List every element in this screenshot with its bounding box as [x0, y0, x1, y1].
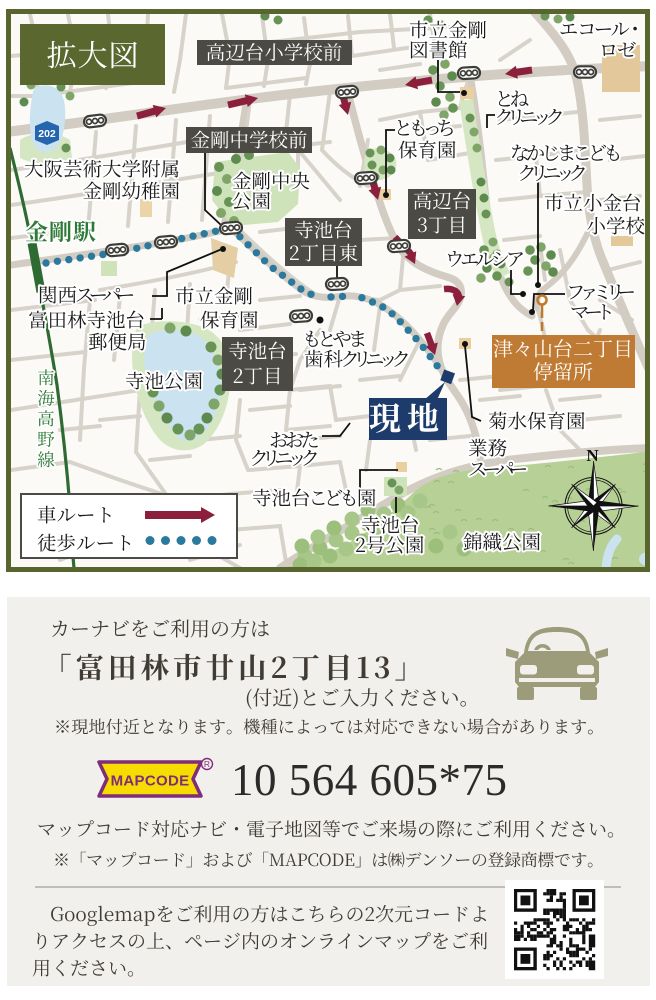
svg-text:10 564 605*75: 10 564 605*75	[231, 755, 508, 805]
svg-text:N: N	[586, 446, 599, 465]
svg-text:R: R	[204, 759, 210, 769]
svg-text:202: 202	[38, 128, 56, 140]
svg-text:MAPCODE: MAPCODE	[111, 773, 190, 790]
